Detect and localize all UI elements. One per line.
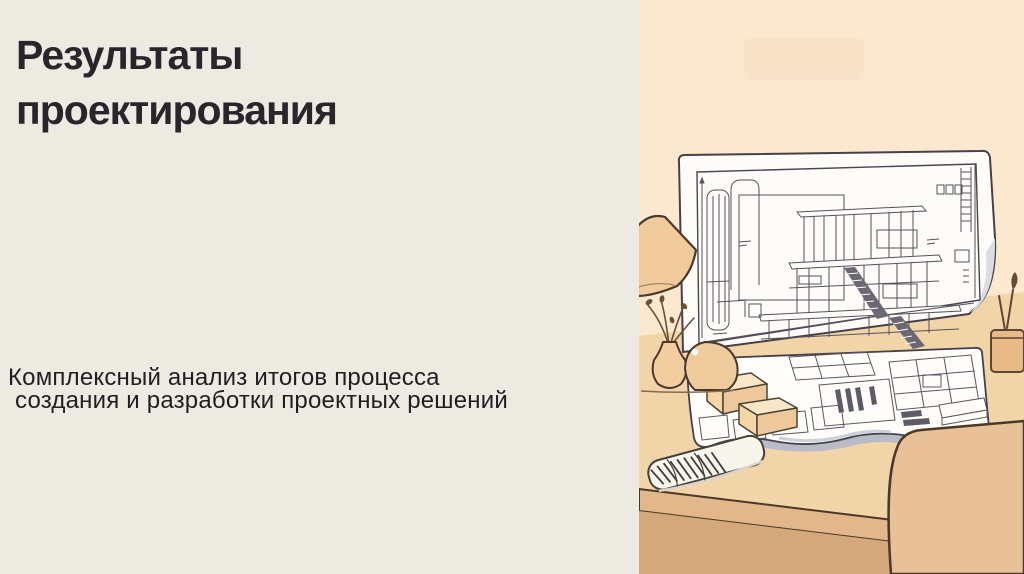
page-title-line1: Результаты bbox=[16, 28, 337, 83]
page-subtitle-line2: создания и разработки проектных решений bbox=[15, 389, 508, 412]
page-subtitle-line1: Комплексный анализ итогов процесса bbox=[8, 366, 508, 389]
page-title: Результаты проектирования bbox=[16, 28, 337, 138]
wall-shading bbox=[744, 38, 864, 80]
jar-highlight bbox=[692, 349, 699, 356]
text-panel: Результаты проектирования Комплексный ан… bbox=[0, 0, 639, 574]
page-subtitle: Комплексный анализ итогов процесса созда… bbox=[8, 366, 508, 412]
chair bbox=[889, 421, 1024, 574]
page-title-line2: проектирования bbox=[16, 83, 337, 138]
presentation-slide: Результаты проектирования Комплексный ан… bbox=[0, 0, 1024, 574]
round-jar bbox=[685, 342, 738, 390]
illustration-panel bbox=[639, 0, 1024, 574]
illustration-architecture-desk bbox=[639, 0, 1024, 574]
